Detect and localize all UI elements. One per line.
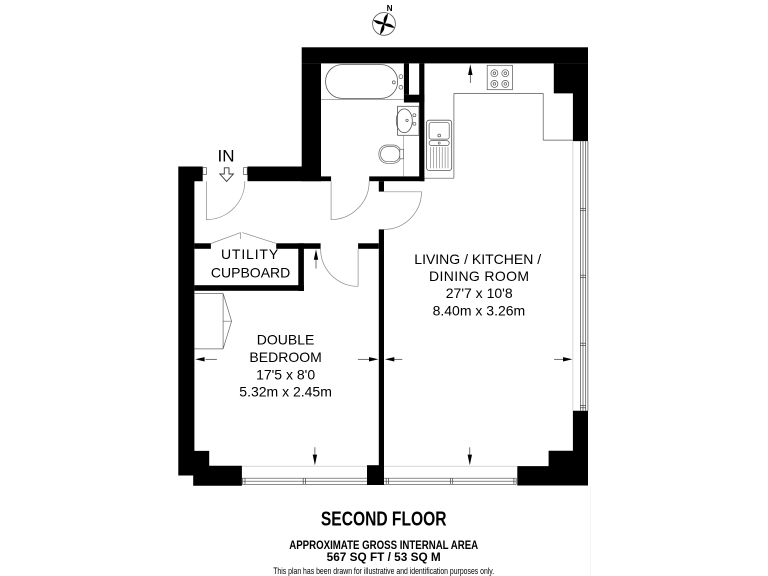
svg-text:N: N <box>387 4 393 13</box>
svg-text:17'5 x 8'0: 17'5 x 8'0 <box>256 366 315 382</box>
svg-text:CUPBOARD: CUPBOARD <box>211 264 290 280</box>
svg-text:IN: IN <box>218 147 235 166</box>
svg-text:27'7 x 10'8: 27'7 x 10'8 <box>446 285 513 301</box>
svg-text:UTILITY: UTILITY <box>221 246 279 262</box>
svg-text:SECOND FLOOR: SECOND FLOOR <box>321 507 447 529</box>
svg-text:This plan has been drawn for i: This plan has been drawn for illustrativ… <box>273 566 494 576</box>
svg-text:567 SQ FT / 53 SQ M: 567 SQ FT / 53 SQ M <box>327 550 441 564</box>
svg-text:8.40m x 3.26m: 8.40m x 3.26m <box>433 302 526 318</box>
svg-text:LIVING / KITCHEN /: LIVING / KITCHEN / <box>414 251 541 267</box>
svg-text:DOUBLE: DOUBLE <box>257 332 315 348</box>
svg-text:DINING ROOM: DINING ROOM <box>429 268 529 284</box>
svg-text:5.32m x 2.45m: 5.32m x 2.45m <box>239 384 332 400</box>
svg-text:BEDROOM: BEDROOM <box>249 349 321 365</box>
